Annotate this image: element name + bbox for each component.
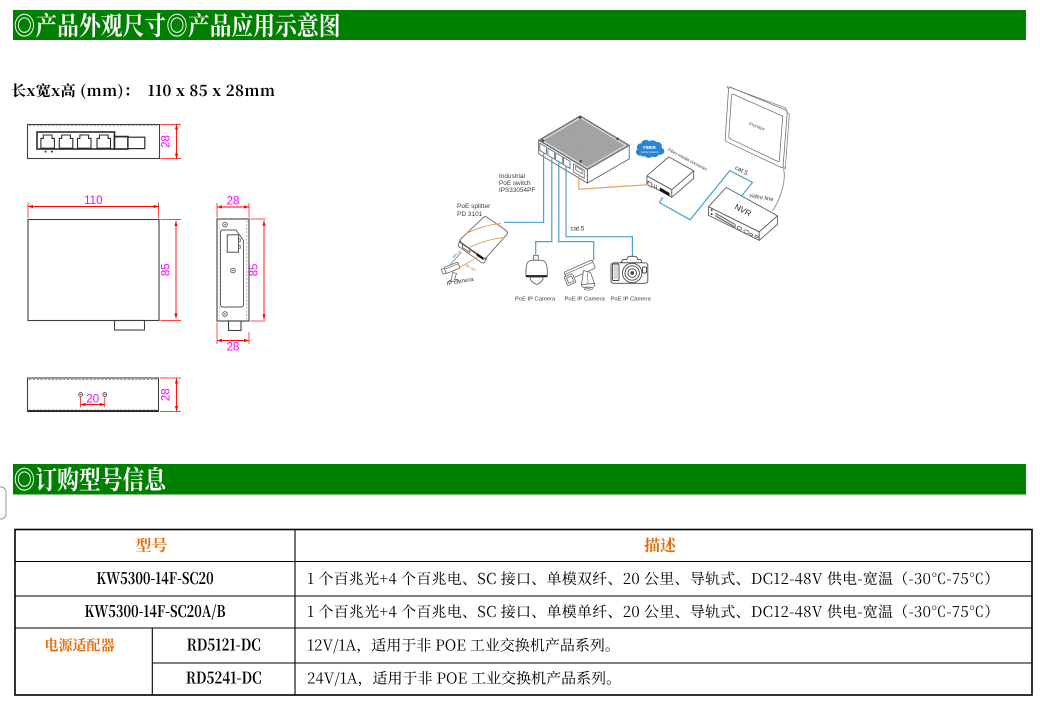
svg-text:IP camera: IP camera — [446, 277, 475, 288]
svg-text:110: 110 — [84, 195, 102, 207]
svg-text:20: 20 — [86, 394, 99, 406]
svg-text:PoE IP Camera: PoE IP Camera — [611, 297, 652, 303]
svg-text:FIBER: FIBER — [643, 145, 656, 150]
svg-text:85: 85 — [249, 264, 261, 277]
svg-text:IPS33054PF: IPS33054PF — [499, 187, 535, 194]
svg-text:85: 85 — [161, 263, 173, 276]
svg-text:cat.5: cat.5 — [571, 226, 585, 233]
svg-text:28: 28 — [227, 196, 240, 208]
svg-text:PD 3101: PD 3101 — [457, 211, 483, 218]
svg-text:28: 28 — [161, 135, 173, 148]
svg-text:28: 28 — [161, 388, 173, 401]
svg-text:Industrial: Industrial — [499, 173, 525, 180]
svg-text:optical network: optical network — [641, 150, 659, 154]
svg-text:cat.5: cat.5 — [734, 165, 750, 178]
svg-text:PoE splitter: PoE splitter — [457, 203, 491, 210]
svg-text:PoE switch: PoE switch — [499, 180, 531, 187]
svg-text:DC out: DC out — [465, 263, 477, 272]
svg-text:28: 28 — [227, 342, 240, 354]
svg-text:PoE IP Camera: PoE IP Camera — [565, 297, 606, 303]
svg-text:PoE IP Camera: PoE IP Camera — [515, 297, 556, 303]
